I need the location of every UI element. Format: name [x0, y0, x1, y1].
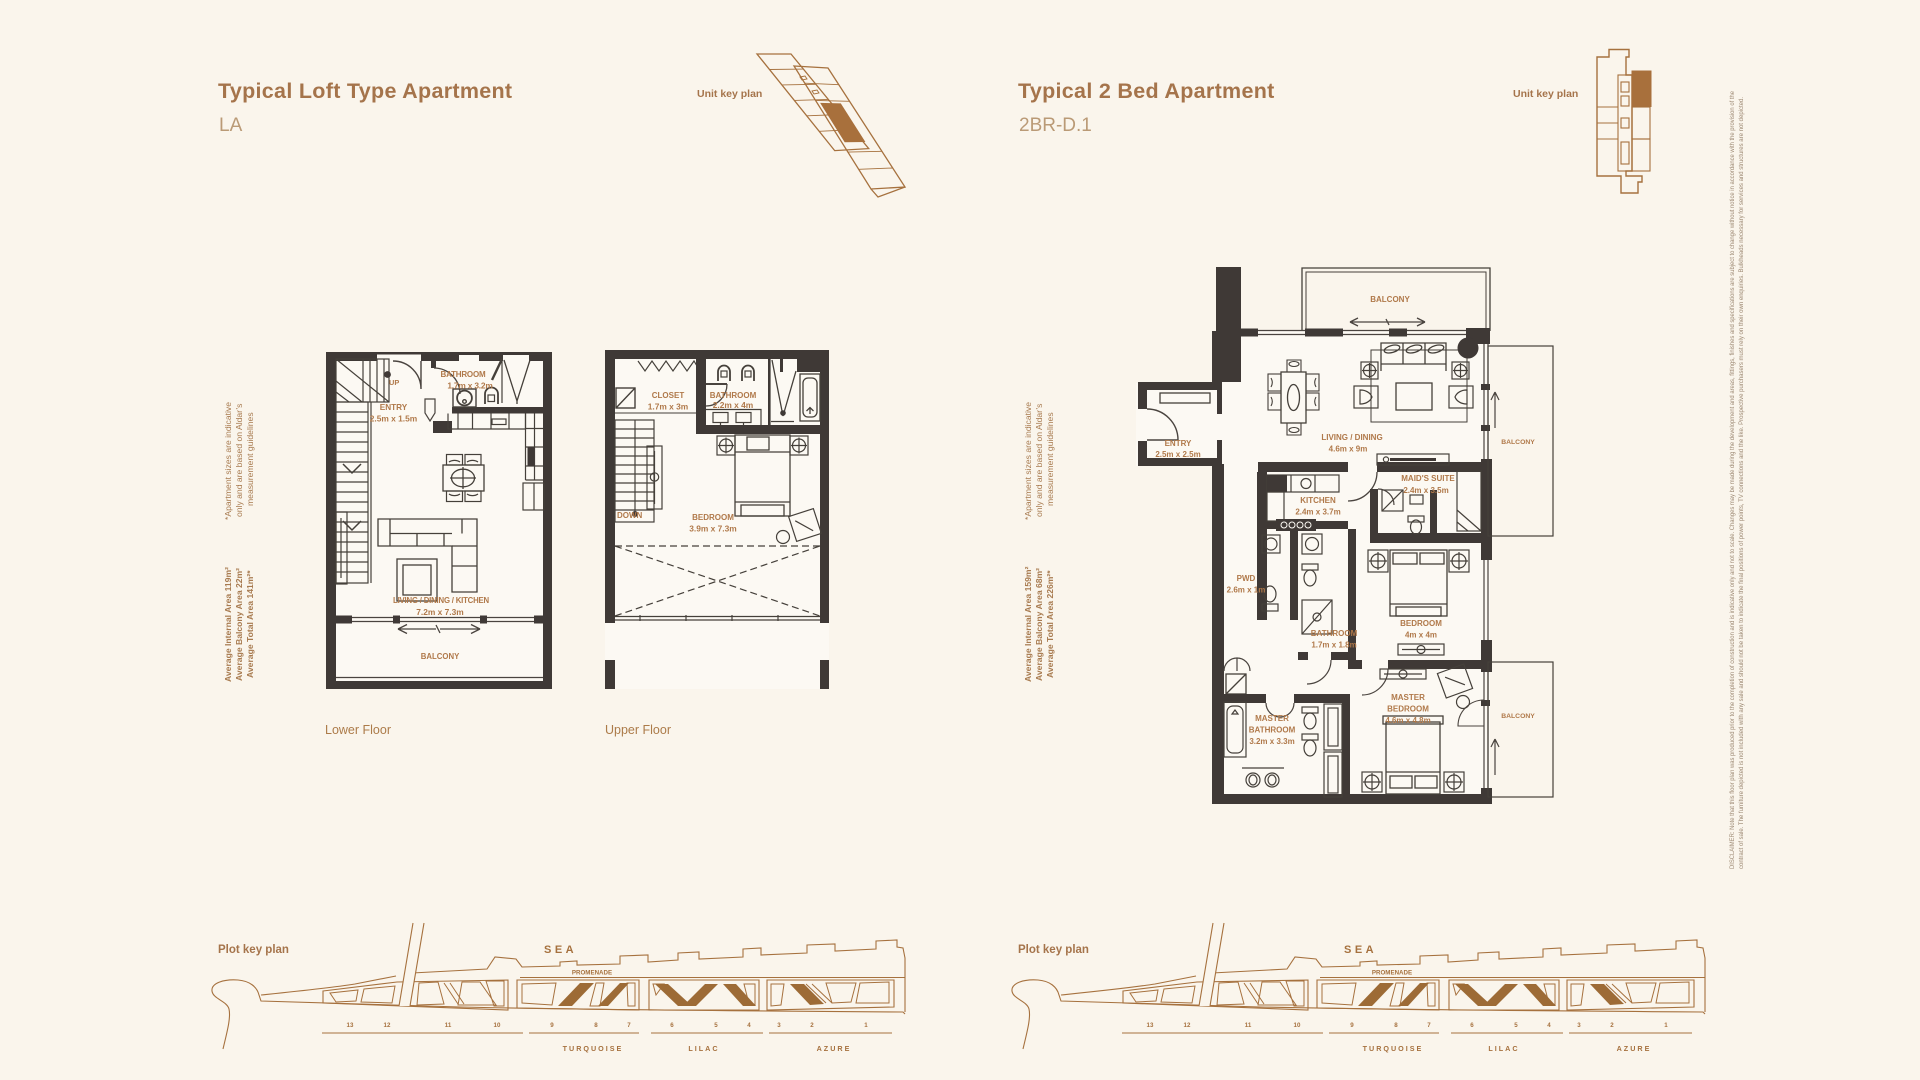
- svg-text:4.6m x 9m: 4.6m x 9m: [1329, 445, 1368, 454]
- svg-text:Average Balcony Area 68m²: Average Balcony Area 68m²: [1034, 568, 1044, 681]
- svg-text:12: 12: [384, 1022, 391, 1029]
- svg-text:BEDROOM: BEDROOM: [1387, 705, 1429, 714]
- svg-text:7: 7: [627, 1022, 631, 1029]
- svg-text:10: 10: [494, 1022, 501, 1029]
- svg-text:BALCONY: BALCONY: [1501, 713, 1535, 720]
- svg-text:3.2m x 3.3m: 3.2m x 3.3m: [1249, 737, 1294, 746]
- svg-text:8: 8: [594, 1022, 598, 1029]
- svg-text:Average Internal Area 159m²: Average Internal Area 159m²: [1023, 566, 1033, 682]
- svg-text:TURQUOISE: TURQUOISE: [563, 1044, 624, 1053]
- svg-text:CLOSET: CLOSET: [652, 391, 685, 400]
- svg-text:DISCLAIMER: Note that this flo: DISCLAIMER: Note that this floor plan wa…: [1729, 91, 1736, 869]
- svg-text:LA: LA: [219, 115, 243, 136]
- svg-text:2.4m x 3.7m: 2.4m x 3.7m: [1295, 508, 1340, 517]
- svg-text:2.2m x 4m: 2.2m x 4m: [713, 400, 754, 410]
- svg-text:DOWN: DOWN: [617, 511, 643, 520]
- svg-text:LILAC: LILAC: [688, 1044, 719, 1053]
- svg-text:Typical Loft Type Apartment: Typical Loft Type Apartment: [218, 79, 512, 103]
- svg-text:6: 6: [670, 1022, 674, 1029]
- svg-text:1: 1: [864, 1022, 868, 1029]
- svg-text:9: 9: [550, 1022, 554, 1029]
- svg-text:7.2m x 7.3m: 7.2m x 7.3m: [416, 607, 464, 617]
- svg-text:contract of sale. The furnitur: contract of sale. The furniture depicted…: [1738, 97, 1745, 869]
- svg-text:3: 3: [777, 1022, 781, 1029]
- svg-text:BATHROOM: BATHROOM: [710, 391, 757, 400]
- svg-text:only and are based on Aldar’s: only and are based on Aldar’s: [1034, 404, 1044, 517]
- svg-text:4.6m x 4.8m: 4.6m x 4.8m: [1385, 716, 1430, 725]
- svg-text:4m x 4m: 4m x 4m: [1405, 631, 1437, 640]
- svg-text:2.5m x 2.5m: 2.5m x 2.5m: [1155, 450, 1200, 459]
- svg-text:1.7m x 3.2m: 1.7m x 3.2m: [447, 381, 492, 391]
- svg-text:13: 13: [347, 1022, 354, 1029]
- svg-text:2: 2: [810, 1022, 814, 1029]
- svg-text:BALCONY: BALCONY: [1501, 439, 1535, 446]
- svg-text:BATHROOM: BATHROOM: [1311, 629, 1358, 638]
- svg-text:*Apartment sizes are indicativ: *Apartment sizes are indicative: [223, 402, 233, 520]
- svg-text:Average Total Area 226m²*: Average Total Area 226m²*: [1045, 570, 1055, 678]
- svg-text:only and are based on Aldar’s: only and are based on Aldar’s: [234, 404, 244, 517]
- svg-text:*Apartment sizes are indicativ: *Apartment sizes are indicative: [1023, 402, 1033, 520]
- svg-text:MASTER: MASTER: [1391, 693, 1425, 702]
- svg-text:LIVING / DINING / KITCHEN: LIVING / DINING / KITCHEN: [393, 596, 489, 605]
- svg-text:BALCONY: BALCONY: [1370, 295, 1410, 304]
- svg-text:BEDROOM: BEDROOM: [1400, 619, 1442, 628]
- svg-text:MASTER: MASTER: [1255, 714, 1289, 723]
- svg-text:measurement guidelines: measurement guidelines: [1045, 412, 1055, 506]
- svg-text:BATHROOM: BATHROOM: [441, 370, 486, 379]
- svg-text:3.9m x 7.3m: 3.9m x 7.3m: [689, 524, 737, 534]
- svg-text:Average Internal Area 119m²: Average Internal Area 119m²: [223, 567, 233, 682]
- svg-text:KITCHEN: KITCHEN: [1300, 496, 1336, 505]
- svg-text:Unit key plan: Unit key plan: [1513, 88, 1578, 100]
- svg-text:AZURE: AZURE: [817, 1044, 852, 1053]
- svg-text:1.7m x 3m: 1.7m x 3m: [648, 402, 689, 412]
- svg-text:Average Balcony Area 22m²: Average Balcony Area 22m²: [234, 568, 244, 681]
- svg-text:2BR-D.1: 2BR-D.1: [1019, 115, 1092, 136]
- svg-text:11: 11: [445, 1022, 452, 1029]
- svg-text:Lower Floor: Lower Floor: [325, 723, 391, 737]
- svg-text:ENTRY: ENTRY: [1165, 439, 1192, 448]
- svg-text:UP: UP: [389, 378, 399, 387]
- svg-text:1.7m x 1.8m: 1.7m x 1.8m: [1311, 641, 1356, 650]
- svg-text:Unit key plan: Unit key plan: [697, 88, 762, 100]
- svg-text:MAID'S SUITE: MAID'S SUITE: [1401, 474, 1455, 483]
- svg-text:Upper Floor: Upper Floor: [605, 723, 671, 737]
- svg-text:Average Total Area 141m²*: Average Total Area 141m²*: [245, 570, 255, 678]
- svg-text:5: 5: [714, 1022, 718, 1029]
- svg-text:4: 4: [747, 1022, 751, 1029]
- svg-text:2.6m x 1m: 2.6m x 1m: [1227, 586, 1266, 595]
- svg-text:BEDROOM: BEDROOM: [692, 513, 734, 522]
- svg-text:2.4m x 3.5m: 2.4m x 3.5m: [1403, 486, 1448, 495]
- svg-text:PROMENADE: PROMENADE: [572, 970, 612, 977]
- svg-text:BALCONY: BALCONY: [421, 652, 460, 661]
- svg-text:Typical 2 Bed Apartment: Typical 2 Bed Apartment: [1018, 79, 1275, 103]
- svg-text:BATHROOM: BATHROOM: [1249, 726, 1296, 735]
- svg-text:2.5m x 1.5m: 2.5m x 1.5m: [370, 414, 418, 424]
- svg-text:ENTRY: ENTRY: [380, 403, 408, 412]
- svg-text:LIVING / DINING: LIVING / DINING: [1321, 433, 1382, 442]
- svg-text:PWD: PWD: [1237, 574, 1256, 583]
- svg-text:Plot key plan: Plot key plan: [218, 944, 289, 956]
- svg-text:SEA: SEA: [544, 944, 577, 956]
- svg-text:measurement guidelines: measurement guidelines: [245, 412, 255, 506]
